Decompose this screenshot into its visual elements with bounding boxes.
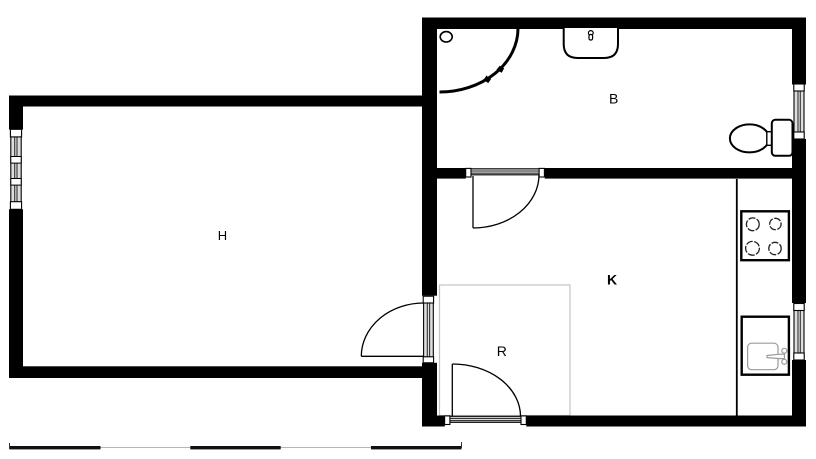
svg-text:R: R (497, 343, 507, 359)
svg-text:H: H (218, 228, 227, 243)
svg-text:K: K (607, 272, 617, 288)
svg-text:B: B (609, 90, 618, 106)
